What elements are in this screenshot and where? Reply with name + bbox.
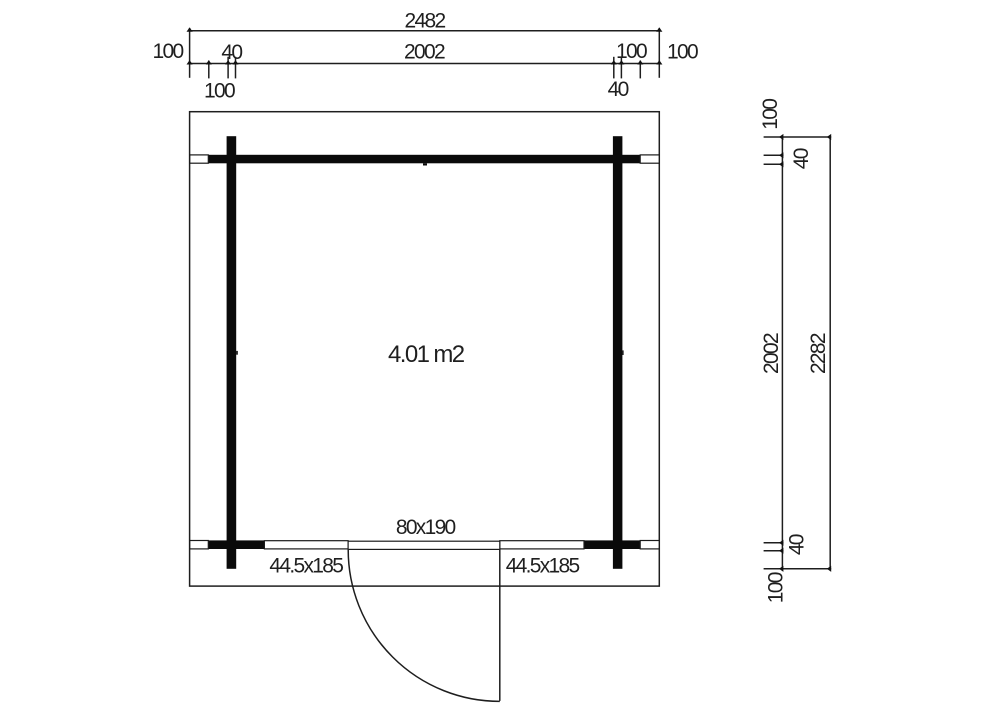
svg-text:40: 40 — [790, 148, 813, 169]
svg-text:2282: 2282 — [807, 333, 830, 374]
svg-text:80x190: 80x190 — [396, 516, 456, 539]
svg-text:100: 100 — [153, 40, 184, 63]
svg-text:4.01 m2: 4.01 m2 — [388, 341, 465, 368]
svg-text:44.5x185: 44.5x185 — [506, 555, 580, 578]
svg-text:100: 100 — [765, 572, 788, 603]
svg-text:2482: 2482 — [405, 10, 446, 33]
svg-text:100: 100 — [616, 40, 647, 63]
svg-text:100: 100 — [759, 99, 782, 130]
svg-text:40: 40 — [786, 534, 809, 555]
svg-text:100: 100 — [667, 40, 698, 63]
svg-text:2002: 2002 — [404, 41, 445, 64]
svg-text:40: 40 — [608, 78, 629, 101]
svg-text:44.5x185: 44.5x185 — [269, 555, 343, 578]
svg-text:2002: 2002 — [760, 333, 783, 374]
svg-text:40: 40 — [221, 41, 242, 64]
svg-text:100: 100 — [204, 80, 235, 103]
